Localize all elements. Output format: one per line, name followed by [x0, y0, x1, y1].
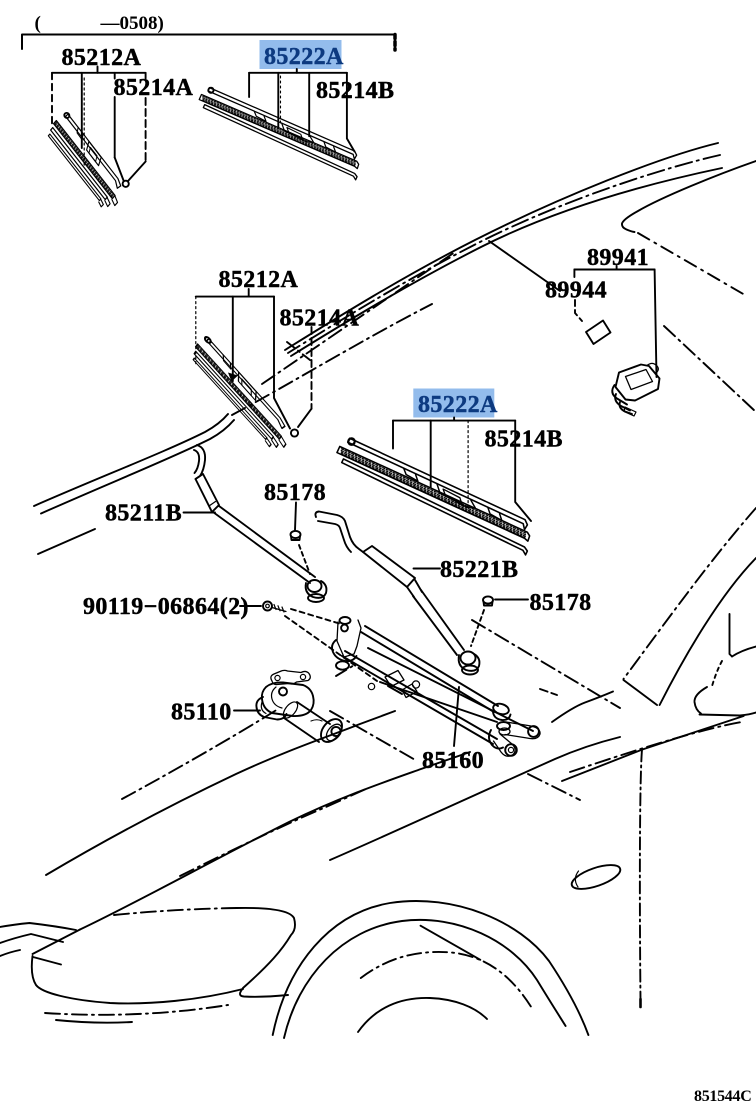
- svg-text:85211B: 85211B: [105, 501, 182, 527]
- svg-text:85178: 85178: [530, 590, 592, 616]
- svg-text:89941: 89941: [587, 245, 649, 271]
- svg-text:85110: 85110: [171, 700, 232, 726]
- svg-text:851544C: 851544C: [694, 1088, 751, 1105]
- svg-text:(: (: [35, 13, 41, 34]
- svg-text:89944: 89944: [545, 278, 607, 304]
- svg-text:85222A: 85222A: [264, 44, 344, 70]
- svg-text:85214A: 85214A: [114, 75, 194, 101]
- svg-text:85214B: 85214B: [316, 78, 394, 104]
- svg-text:85222A: 85222A: [418, 392, 498, 418]
- svg-text:85214A: 85214A: [280, 306, 360, 332]
- svg-text:85160: 85160: [422, 748, 484, 774]
- svg-text:85178: 85178: [264, 480, 326, 506]
- svg-text:90119−06864(2): 90119−06864(2): [83, 594, 249, 620]
- svg-text:85212A: 85212A: [62, 45, 142, 71]
- svg-text:—0508): —0508): [100, 13, 164, 34]
- svg-text:85214B: 85214B: [485, 427, 563, 453]
- svg-text:85212A: 85212A: [219, 267, 299, 293]
- svg-text:85221B: 85221B: [440, 557, 518, 583]
